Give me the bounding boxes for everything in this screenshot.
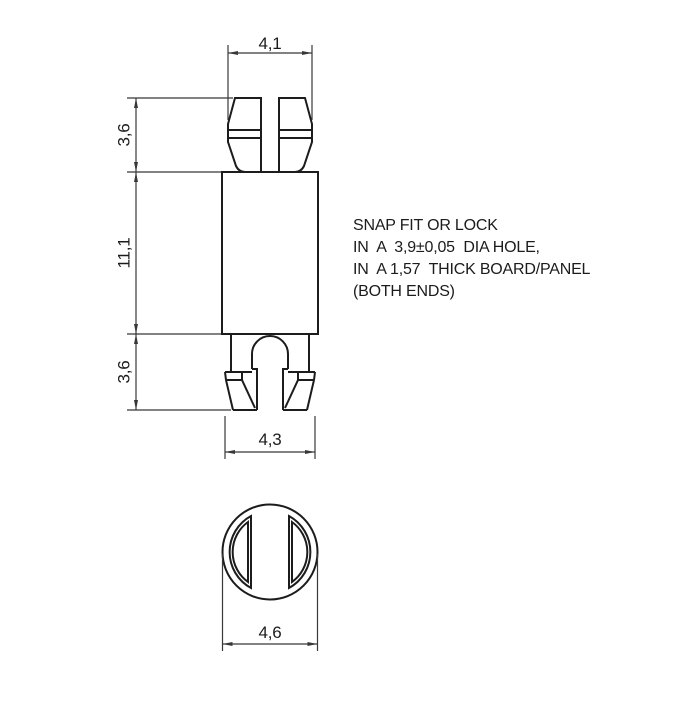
drawing-page: 4,1 3,6 11,1 3,6 4,3 SNAP FIT OR LOCK IN… <box>0 0 700 700</box>
dim-label-diameter: 4,6 <box>258 623 281 642</box>
dim-label-top-width: 4,1 <box>258 34 281 53</box>
dim-label-upper-height: 3,6 <box>114 123 133 146</box>
note-line-3: IN A 1,57 THICK BOARD/PANEL <box>353 261 591 278</box>
spacer-body <box>222 172 318 334</box>
top-prong-right <box>279 98 312 172</box>
technical-drawing-canvas: 4,1 3,6 11,1 3,6 4,3 SNAP FIT OR LOCK IN… <box>0 0 700 700</box>
bottom-barb-right-diagonal <box>285 380 298 408</box>
note-block: SNAP FIT OR LOCK IN A 3,9±0,05 DIA HOLE,… <box>353 217 591 300</box>
bottom-barb-left-diagonal <box>242 380 255 408</box>
dim-label-lower-height: 3,6 <box>114 360 133 383</box>
note-line-2: IN A 3,9±0,05 DIA HOLE, <box>353 239 540 256</box>
bottom-view-part <box>223 505 318 600</box>
bottom-barb-right-outer <box>307 372 315 410</box>
bottom-barb-left-outer <box>225 372 233 410</box>
bottom-slot <box>252 336 288 369</box>
note-line-1: SNAP FIT OR LOCK <box>353 217 498 234</box>
bottom-view-dimension-labels: 4,6 <box>258 623 281 642</box>
note-line-4: (BOTH ENDS) <box>353 283 455 300</box>
top-prong-left <box>228 98 261 172</box>
front-view-part <box>222 98 318 410</box>
bottom-barb-left-notch <box>226 372 242 380</box>
dim-label-bottom-width: 4,3 <box>258 430 281 449</box>
bottom-view-outer-circle <box>223 505 318 600</box>
bottom-barb-right-notch <box>298 372 314 380</box>
dim-label-body-height: 11,1 <box>114 237 133 268</box>
